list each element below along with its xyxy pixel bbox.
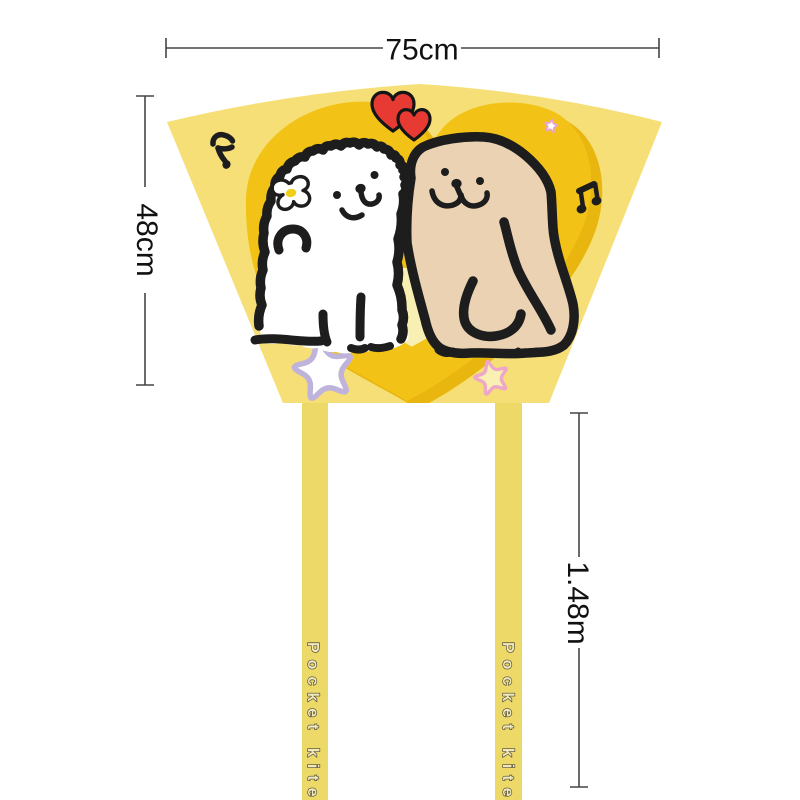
svg-text:48cm: 48cm [130,203,163,276]
svg-text:Pocket kite: Pocket kite [304,642,321,800]
svg-text:Pocket kite: Pocket kite [499,642,516,800]
svg-text:75cm: 75cm [385,34,458,67]
svg-text:1.48m: 1.48m [561,561,594,644]
